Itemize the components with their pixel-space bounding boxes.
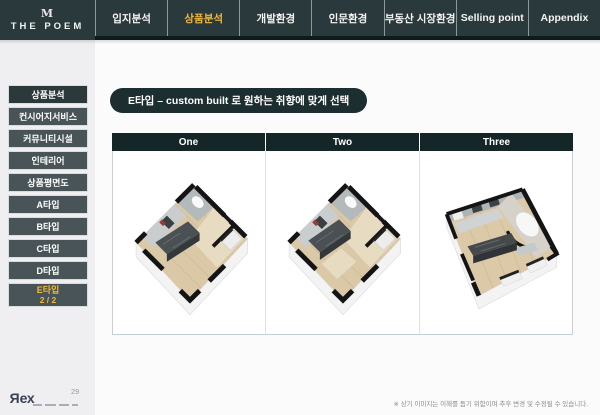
floorplan-table-body [112, 151, 573, 335]
sidebar-item-community-facility[interactable]: 커뮤니티시설 [8, 129, 88, 148]
rex-tagline-microtext [33, 404, 78, 406]
sidebar-item-type-e-page: 2 / 2 [40, 295, 57, 305]
tab-appendix[interactable]: Appendix [528, 0, 600, 36]
floorplan-three-image [420, 154, 572, 332]
sidebar-item-floorplans[interactable]: 상품평면도 [8, 173, 88, 192]
sidebar-item-interior[interactable]: 인테리어 [8, 151, 88, 170]
column-header-two: Two [265, 133, 419, 151]
top-navigation-bar: M THE POEM 입지분석 상품분석 개발환경 인문환경 부동산 시장환경 … [0, 0, 600, 40]
sidebar-menu: 상품분석 컨시어지서비스 커뮤니티시설 인테리어 상품평면도 A타입 B타입 C… [8, 85, 88, 310]
sidebar-item-type-c[interactable]: C타입 [8, 239, 88, 258]
column-header-three: Three [419, 133, 573, 151]
poem-m-icon: M [41, 9, 54, 19]
floorplan-options-table: One Two Three [112, 133, 573, 335]
sidebar-item-concierge-service[interactable]: 컨시어지서비스 [8, 107, 88, 126]
tab-humanities-env[interactable]: 인문환경 [311, 0, 383, 36]
header-shadow [0, 40, 600, 44]
floorplan-cell-two [265, 151, 418, 334]
sidebar-item-product-analysis[interactable]: 상품분석 [8, 85, 88, 104]
page-number: 29 [71, 387, 79, 396]
tab-product-analysis[interactable]: 상품분석 [167, 0, 239, 36]
brand-logo: M THE POEM [0, 0, 95, 40]
tab-selling-point[interactable]: Selling point [456, 0, 528, 36]
sidebar-item-type-a[interactable]: A타입 [8, 195, 88, 214]
sidebar-item-type-e-label: E타입 [37, 285, 60, 295]
rex-logo: Rex [10, 392, 34, 405]
floorplan-cell-three [419, 151, 572, 334]
brand-title: THE POEM [11, 21, 85, 32]
nav-tabs: 입지분석 상품분석 개발환경 인문환경 부동산 시장환경 Selling poi… [95, 0, 600, 40]
sidebar-item-type-d[interactable]: D타입 [8, 261, 88, 280]
column-header-one: One [112, 133, 265, 151]
floorplan-table-header: One Two Three [112, 133, 573, 151]
floorplan-cell-one [113, 151, 265, 334]
sidebar-item-type-b[interactable]: B타입 [8, 217, 88, 236]
tab-ipji-analysis[interactable]: 입지분석 [95, 0, 167, 36]
slide-title: E타입 – custom built 로 원하는 취향에 맞게 선택 [110, 88, 367, 113]
disclaimer-text: ※ 상기 이미지는 이해를 돕기 위함이며 추후 변경 및 수정될 수 있습니다… [393, 398, 588, 408]
sidebar-item-type-e[interactable]: E타입 2 / 2 [8, 283, 88, 307]
tab-development-env[interactable]: 개발환경 [239, 0, 311, 36]
floorplan-one-image [114, 154, 264, 332]
tab-realestate-market[interactable]: 부동산 시장환경 [384, 0, 456, 36]
floorplan-two-image [267, 154, 417, 332]
